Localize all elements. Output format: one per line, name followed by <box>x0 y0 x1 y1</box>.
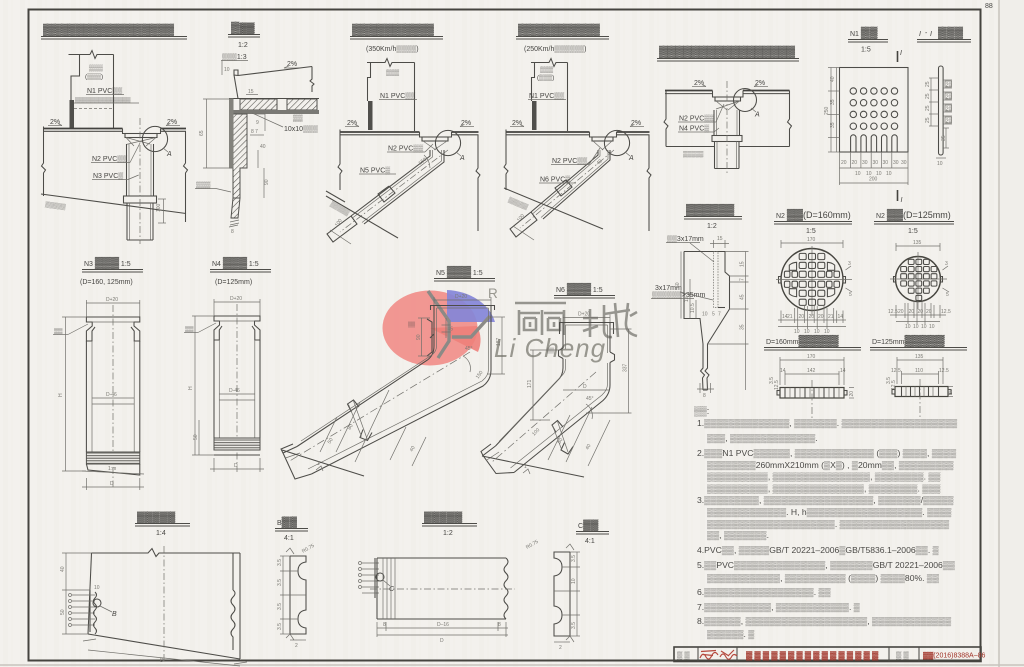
svg-text:10: 10 <box>571 578 577 584</box>
svg-text:30: 30 <box>893 160 899 166</box>
svg-text:5: 5 <box>712 312 715 318</box>
svg-text:30: 30 <box>883 160 889 166</box>
svg-text:14: 14 <box>780 368 786 374</box>
svg-text:N1 PVC▒▒: N1 PVC▒▒ <box>87 87 122 95</box>
svg-text:3.5: 3.5 <box>571 555 577 562</box>
svg-text:D: D <box>440 638 444 644</box>
svg-text:12.5: 12.5 <box>891 368 901 374</box>
svg-text:▒▒▒, ▒▒▒▒▒▒▒▒▒▒▒▒▒▒.: ▒▒▒, ▒▒▒▒▒▒▒▒▒▒▒▒▒▒. <box>707 433 818 443</box>
svg-text:5: 5 <box>849 292 852 298</box>
svg-text:8: 8 <box>383 622 386 628</box>
svg-text:35: 35 <box>941 135 947 141</box>
svg-text:1:5: 1:5 <box>861 47 871 54</box>
svg-text:N1 PVC▒▒: N1 PVC▒▒ <box>380 92 415 100</box>
svg-text:3.5: 3.5 <box>277 603 283 610</box>
svg-text:▓▓(2016)8388A–86: ▓▓(2016)8388A–86 <box>923 652 985 660</box>
svg-text:200: 200 <box>869 177 878 183</box>
svg-text:25: 25 <box>925 81 931 87</box>
svg-text:A: A <box>166 151 172 158</box>
svg-text:15: 15 <box>740 261 746 267</box>
svg-text:(▒▒▒): (▒▒▒) <box>537 74 554 82</box>
svg-text:45: 45 <box>740 294 746 300</box>
svg-text:N6 PVC▒: N6 PVC▒ <box>540 176 570 184</box>
svg-text:12.5: 12.5 <box>888 309 898 315</box>
svg-text:30: 30 <box>901 160 907 166</box>
svg-text:▓▓▓▓▓▓▓▓▓▓: ▓▓▓▓▓▓▓▓▓▓ <box>352 23 435 37</box>
svg-text:20: 20 <box>946 94 952 100</box>
svg-text:10x10▒▒▒: 10x10▒▒▒ <box>284 125 318 133</box>
svg-text:15: 15 <box>717 236 723 242</box>
svg-text:I: I <box>919 31 921 38</box>
svg-text:20: 20 <box>946 106 952 112</box>
svg-text:7: 7 <box>718 312 721 318</box>
svg-text:3: 3 <box>848 261 851 267</box>
svg-text:(D=160, 125mm): (D=160, 125mm) <box>80 279 133 286</box>
svg-text:B: B <box>112 611 117 618</box>
svg-text:250: 250 <box>824 106 830 115</box>
svg-text:20: 20 <box>818 314 824 320</box>
svg-text:3: 3 <box>945 261 948 267</box>
svg-text:D+20: D+20 <box>230 296 242 302</box>
svg-text:▒▒▒: ▒▒▒ <box>89 64 103 72</box>
svg-text:40: 40 <box>60 566 66 572</box>
svg-text:N2 ▓▓(D=125mm): N2 ▓▓(D=125mm) <box>876 208 951 222</box>
svg-text:12: 12 <box>684 296 690 302</box>
svg-text:▒▒: ▒▒ <box>547 347 555 354</box>
svg-text:8 7: 8 7 <box>251 129 258 135</box>
svg-text:25: 25 <box>925 117 931 123</box>
svg-text:20: 20 <box>946 118 952 124</box>
svg-text:2%: 2% <box>755 80 765 87</box>
svg-text:20: 20 <box>852 160 858 166</box>
svg-text:10: 10 <box>937 161 943 167</box>
svg-text:135: 135 <box>913 240 922 246</box>
svg-text:▒▒▒1:3: ▒▒▒1:3 <box>222 53 247 61</box>
svg-text:20: 20 <box>799 314 805 320</box>
svg-text:10: 10 <box>94 585 100 591</box>
svg-text:10: 10 <box>224 67 230 73</box>
svg-text:▒▒: ▒▒ <box>293 114 303 122</box>
svg-text:25: 25 <box>925 105 931 111</box>
svg-text:▓▓▓: ▓▓▓ <box>231 21 255 35</box>
svg-text:15: 15 <box>248 89 254 95</box>
svg-text:D: D <box>110 481 114 487</box>
svg-text:5.▒▒PVC▒▒▒▒▒▒▒▒▒▒▒▒▒▒▒, ▒▒▒▒▒▒: 5.▒▒PVC▒▒▒▒▒▒▒▒▒▒▒▒▒▒▒, ▒▒▒▒▒▒▒GB/T 2022… <box>697 560 956 570</box>
svg-text:D+20: D+20 <box>106 297 118 303</box>
svg-text:▒▒▒▒▒▒. ▒: ▒▒▒▒▒▒. ▒ <box>707 629 755 639</box>
svg-text:▒▒: ▒▒ <box>408 321 416 328</box>
svg-text:N1 PVC▒▒: N1 PVC▒▒ <box>529 92 564 100</box>
svg-text:N2 PVC▒▒: N2 PVC▒▒ <box>679 115 714 123</box>
svg-text:▒▒▒▒▒▒▒▒▒▒, ▒▒▒▒▒▒▒▒▒▒▒▒▒▒▒, ▒: ▒▒▒▒▒▒▒▒▒▒, ▒▒▒▒▒▒▒▒▒▒▒▒▒▒▒, ▒▒▒▒▒▒▒▒. ▒… <box>707 484 941 494</box>
svg-text:N5 PVC▒: N5 PVC▒ <box>360 167 390 175</box>
svg-text:D: D <box>583 384 587 390</box>
svg-text:8: 8 <box>231 229 234 235</box>
svg-text:14: 14 <box>838 314 844 320</box>
svg-text:I: I <box>930 31 932 38</box>
svg-text:▓▓▓: ▓▓▓ <box>938 26 964 40</box>
svg-text:H: H <box>58 393 64 397</box>
svg-text:▒▒:: ▒▒: <box>694 406 709 417</box>
svg-text:1:2: 1:2 <box>238 42 248 49</box>
svg-text:7: 7 <box>740 278 746 281</box>
svg-text:▒▒: ▒▒ <box>185 326 194 333</box>
svg-text:2%: 2% <box>50 119 60 126</box>
svg-text:▒▒▒▒▒▒▒▒260mmX210mm (▒X▒) , ▒2: ▒▒▒▒▒▒▒▒260mmX210mm (▒X▒) , ▒20mm▒▒, ▒▒▒… <box>707 460 955 470</box>
svg-text:2%: 2% <box>287 61 297 68</box>
svg-text:3.5: 3.5 <box>277 559 283 566</box>
svg-text:1:4: 1:4 <box>156 530 166 537</box>
svg-text:30: 30 <box>862 160 868 166</box>
svg-text:2: 2 <box>295 643 298 649</box>
svg-text:170: 170 <box>807 354 816 360</box>
svg-text:▒▒▒▒▒▒▒▒▒▒▒▒, ▒▒▒▒▒▒▒▒▒▒ (▒▒▒▒: ▒▒▒▒▒▒▒▒▒▒▒▒, ▒▒▒▒▒▒▒▒▒▒ (▒▒▒▒) ▒▒▒▒80%.… <box>707 573 940 583</box>
svg-text:D-46: D-46 <box>106 392 117 398</box>
svg-text:337: 337 <box>623 363 629 372</box>
svg-text:N2 PVC▒▒: N2 PVC▒▒ <box>552 157 587 165</box>
svg-text:20: 20 <box>918 309 924 315</box>
svg-text:7.▒▒▒▒▒▒▒▒▒▒▒, ▒▒▒▒▒▒▒▒▒▒▒▒. ▒: 7.▒▒▒▒▒▒▒▒▒▒▒, ▒▒▒▒▒▒▒▒▒▒▒▒. ▒ <box>697 602 861 612</box>
svg-text:1:5: 1:5 <box>908 228 918 235</box>
svg-text:▒▒▒▒▒▒▒▒▒▒, ▒▒▒▒▒▒▒▒▒▒▒▒▒▒▒▒,: ▒▒▒▒▒▒▒▒▒▒, ▒▒▒▒▒▒▒▒▒▒▒▒▒▒▒▒, ▒▒▒▒▒▒▒▒. … <box>707 472 941 482</box>
svg-text:12.5: 12.5 <box>891 380 897 390</box>
svg-text:8.▒▒▒▒▒▒, ▒▒▒▒▒▒▒▒▒▒▒▒▒▒▒▒▒▒▒▒: 8.▒▒▒▒▒▒, ▒▒▒▒▒▒▒▒▒▒▒▒▒▒▒▒▒▒▒▒, ▒▒▒▒▒▒▒▒… <box>697 616 952 626</box>
svg-text:D+20: D+20 <box>578 312 590 318</box>
svg-text:40: 40 <box>830 76 836 82</box>
svg-text:8: 8 <box>498 622 501 628</box>
svg-text:2%: 2% <box>461 120 471 127</box>
svg-text:35: 35 <box>830 99 836 105</box>
svg-text:4.PVC▒▒, ▒▒▒▒▒GB/T 20221–2006▒: 4.PVC▒▒, ▒▒▒▒▒GB/T 20221–2006▒GB/T5836.1… <box>697 545 940 555</box>
svg-text:A: A <box>628 155 634 162</box>
svg-text:50: 50 <box>193 434 199 440</box>
svg-text:6.▒▒▒▒▒▒▒▒▒▒▒▒▒▒▒▒▒▒. ▒▒: 6.▒▒▒▒▒▒▒▒▒▒▒▒▒▒▒▒▒▒. ▒▒ <box>697 587 832 597</box>
svg-text:142: 142 <box>807 368 816 374</box>
svg-text:20: 20 <box>809 314 815 320</box>
svg-text:▒▒▒▒▒▒▒▒▒▒▒▒▒▒▒▒▒▒▒▒▒. ▒▒▒▒▒▒▒: ▒▒▒▒▒▒▒▒▒▒▒▒▒▒▒▒▒▒▒▒▒. ▒▒▒▒▒▒▒▒▒▒▒▒▒▒▒▒▒… <box>707 519 950 529</box>
svg-text:▓▓▓▓▓: ▓▓▓▓▓ <box>424 511 463 523</box>
svg-text:60: 60 <box>675 282 681 288</box>
svg-text:35: 35 <box>740 324 746 330</box>
svg-text:1:2: 1:2 <box>443 530 453 537</box>
svg-text:▒▒: ▒▒ <box>54 328 63 335</box>
svg-text:2.▒▒▒N1 PVC▒▒▒▒▒▒, ▒▒▒▒▒▒▒▒▒▒▒: 2.▒▒▒N1 PVC▒▒▒▒▒▒, ▒▒▒▒▒▒▒▒▒▒▒▒▒ (▒▒▒) ▒… <box>697 448 957 458</box>
svg-text:12.5: 12.5 <box>774 380 780 390</box>
svg-text:90: 90 <box>264 179 270 185</box>
svg-text:9: 9 <box>256 120 259 126</box>
svg-text:100: 100 <box>156 203 162 212</box>
svg-text:▒▒▒▒▒▒▒▒▒▒▒▒▒. H, h▒▒▒▒▒▒▒▒▒▒▒: ▒▒▒▒▒▒▒▒▒▒▒▒▒. H, h▒▒▒▒▒▒▒▒▒▒▒▒▒▒▒▒▒▒▒. … <box>707 507 952 517</box>
svg-text:3.5: 3.5 <box>571 622 577 629</box>
svg-text:10: 10 <box>929 324 935 330</box>
svg-text:135: 135 <box>915 354 924 360</box>
svg-text:50: 50 <box>60 609 66 615</box>
svg-text:10: 10 <box>886 171 892 177</box>
svg-text:▓▓▓▓▓▓: ▓▓▓▓▓▓ <box>686 203 735 217</box>
svg-text:1:2: 1:2 <box>707 223 717 230</box>
svg-text:1:m: 1:m <box>108 466 116 472</box>
svg-text:I: I <box>900 50 902 57</box>
svg-text:5: 5 <box>946 292 949 298</box>
svg-text:20: 20 <box>926 309 932 315</box>
svg-text:40: 40 <box>260 144 266 150</box>
svg-text:30: 30 <box>873 160 879 166</box>
svg-text:45°: 45° <box>586 396 594 402</box>
svg-text:(250Km/h▒▒▒▒▒▒): (250Km/h▒▒▒▒▒▒) <box>524 45 586 53</box>
svg-text:187: 187 <box>496 337 502 346</box>
svg-text:25: 25 <box>925 93 931 99</box>
svg-text:10: 10 <box>921 324 927 330</box>
svg-text:▓▓▓▓▓▓▓▓▓▓▓▓▓▓▓▓: ▓▓▓▓▓▓▓▓▓▓▓▓▓▓▓▓ <box>746 650 880 661</box>
svg-text:65: 65 <box>199 130 205 136</box>
svg-text:1: 1 <box>317 461 320 467</box>
svg-text:▓▓▓▓▓▓▓▓▓▓▓▓▓▓▓▓: ▓▓▓▓▓▓▓▓▓▓▓▓▓▓▓▓ <box>43 23 175 37</box>
svg-text:21: 21 <box>787 314 793 320</box>
svg-text:I: I <box>901 197 903 204</box>
svg-text:1.▒▒▒▒▒▒▒▒▒▒▒▒▒▒, ▒▒▒▒▒▒▒. ▒▒▒: 1.▒▒▒▒▒▒▒▒▒▒▒▒▒▒, ▒▒▒▒▒▒▒. ▒▒▒▒▒▒▒▒▒▒▒▒▒… <box>697 418 958 428</box>
svg-text:14: 14 <box>840 368 846 374</box>
svg-text:20: 20 <box>909 309 915 315</box>
svg-text:(350Km/h▒▒▒▒): (350Km/h▒▒▒▒) <box>366 45 419 53</box>
svg-text:20: 20 <box>849 391 855 397</box>
svg-text:▒▒▒▒▒▒▒▒▒▒▒▒▒▒: ▒▒▒▒▒▒▒▒▒▒▒▒▒▒ <box>75 97 131 104</box>
svg-text:20: 20 <box>948 389 954 395</box>
svg-text:(▒▒▒): (▒▒▒) <box>85 73 103 81</box>
svg-text:▒▒, ▒▒▒▒▒▒▒.: ▒▒, ▒▒▒▒▒▒▒. <box>707 530 769 540</box>
svg-text:2%: 2% <box>694 80 704 87</box>
svg-text:▒▒▒: ▒▒▒ <box>540 66 554 74</box>
svg-text:N2 ▓▓(D=160mm): N2 ▓▓(D=160mm) <box>776 208 851 222</box>
svg-text:1: 1 <box>524 464 527 470</box>
svg-text:12.5: 12.5 <box>939 368 949 374</box>
svg-text:4:1: 4:1 <box>585 538 595 545</box>
svg-text:90: 90 <box>416 334 422 340</box>
svg-text:1:5: 1:5 <box>806 228 816 235</box>
svg-text:▓▓▓▓▓▓▓▓▓▓▓▓▓▓▓▓▓: ▓▓▓▓▓▓▓▓▓▓▓▓▓▓▓▓▓ <box>659 45 796 59</box>
svg-text:3.5: 3.5 <box>277 579 283 586</box>
svg-text:N3 PVC▒: N3 PVC▒ <box>93 172 123 180</box>
svg-text:45: 45 <box>448 327 454 333</box>
svg-text:8: 8 <box>703 393 706 399</box>
svg-text:110: 110 <box>915 368 923 374</box>
svg-text:D–16: D–16 <box>437 622 449 628</box>
svg-text:H: H <box>188 386 194 390</box>
svg-text:20: 20 <box>898 309 904 315</box>
svg-text:10: 10 <box>855 171 861 177</box>
svg-text:▒▒3x17mm: ▒▒3x17mm <box>667 235 704 243</box>
svg-text:20: 20 <box>841 160 847 166</box>
svg-text:45°: 45° <box>465 346 473 352</box>
svg-text:10.5: 10.5 <box>690 303 696 313</box>
svg-text:A: A <box>754 112 760 119</box>
svg-text:N2 PVC▒▒: N2 PVC▒▒ <box>388 145 423 153</box>
svg-text:A: A <box>459 155 465 162</box>
svg-text:D: D <box>160 658 164 664</box>
svg-text:▒ ▒: ▒ ▒ <box>896 651 909 660</box>
svg-text:10: 10 <box>913 324 919 330</box>
svg-text:D+20: D+20 <box>455 294 467 300</box>
svg-text:10: 10 <box>702 312 708 318</box>
svg-text:20: 20 <box>946 82 952 88</box>
svg-text:R: R <box>488 286 498 301</box>
svg-text:(D=125mm): (D=125mm) <box>215 279 252 286</box>
svg-text:21: 21 <box>828 314 834 320</box>
svg-text:170: 170 <box>807 237 816 243</box>
svg-text:▒ ▒: ▒ ▒ <box>677 651 690 660</box>
svg-text:2: 2 <box>559 645 562 651</box>
svg-text:N4 PVC▒: N4 PVC▒ <box>679 125 709 133</box>
svg-text:3.▒▒▒▒▒▒▒▒▒, ▒▒▒▒▒▒▒▒▒▒▒▒▒▒▒▒▒: 3.▒▒▒▒▒▒▒▒▒, ▒▒▒▒▒▒▒▒▒▒▒▒▒▒▒▒▒▒, ▒▒▒▒▒▒▒… <box>697 495 954 505</box>
svg-text:▓▓▓▓▓▓▓▓▓▓: ▓▓▓▓▓▓▓▓▓▓ <box>518 23 601 37</box>
svg-text:N2 PVC▒▒: N2 PVC▒▒ <box>92 155 127 163</box>
svg-text:2%: 2% <box>167 119 177 126</box>
svg-text:D-46: D-46 <box>229 388 240 394</box>
svg-text:12.5: 12.5 <box>941 309 951 315</box>
svg-text:88: 88 <box>985 3 993 10</box>
svg-text:35: 35 <box>830 122 836 128</box>
svg-text:3.5: 3.5 <box>277 623 283 630</box>
svg-text:2%: 2% <box>512 120 522 127</box>
svg-text:4:1: 4:1 <box>284 535 294 542</box>
svg-text:▒▒▒▒▒: ▒▒▒▒▒ <box>683 151 704 158</box>
svg-text:▒▒▒▒▒▒>35mm: ▒▒▒▒▒▒>35mm <box>652 291 705 299</box>
svg-text:2%: 2% <box>347 120 357 127</box>
svg-text:▒▒▒: ▒▒▒ <box>386 69 400 77</box>
svg-text:2%: 2% <box>631 120 641 127</box>
svg-text:171: 171 <box>527 379 533 388</box>
svg-text:▓▓▓▓▓: ▓▓▓▓▓ <box>137 511 176 523</box>
svg-text:D: D <box>234 463 238 469</box>
svg-text:▒▒▒: ▒▒▒ <box>196 181 211 189</box>
svg-text:10: 10 <box>905 324 911 330</box>
